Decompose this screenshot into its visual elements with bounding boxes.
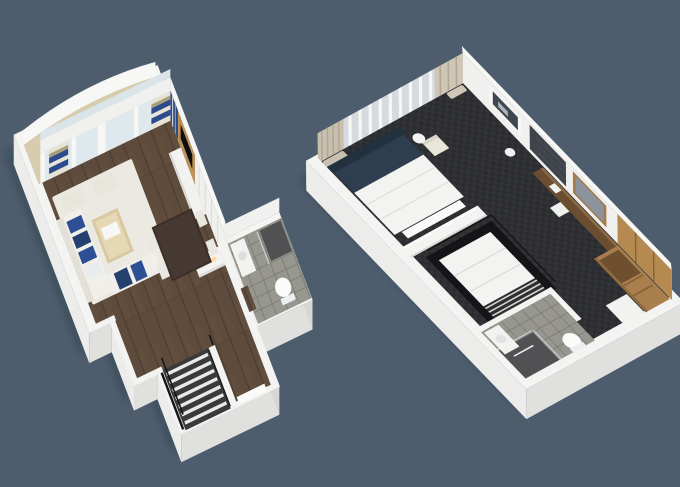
scene-canvas — [0, 0, 680, 487]
floor-plan-render — [0, 0, 680, 487]
